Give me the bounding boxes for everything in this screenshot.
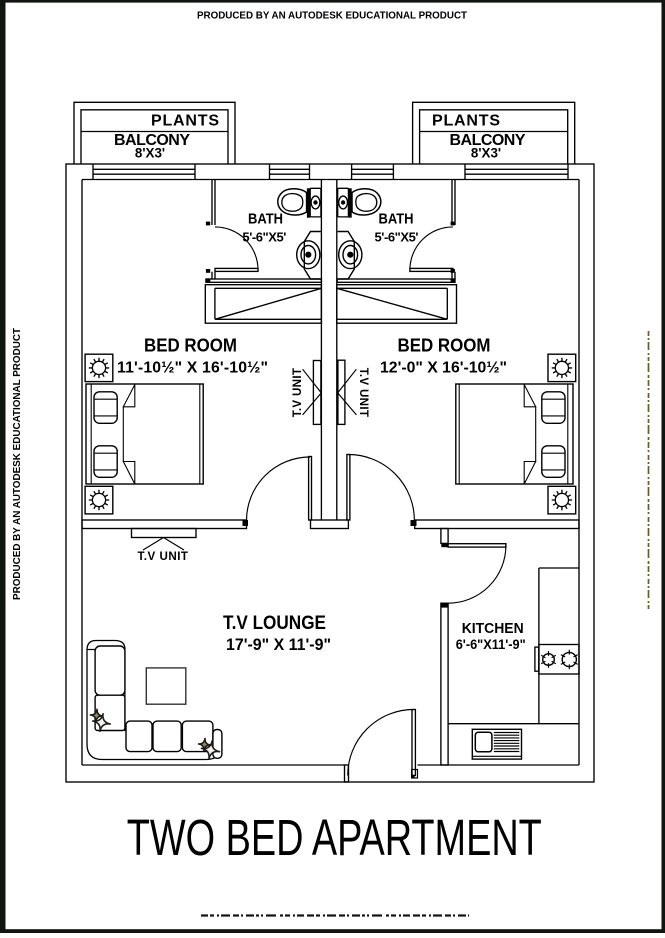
svg-text:BED ROOM: BED ROOM (144, 335, 237, 356)
svg-text:8'X3': 8'X3' (471, 146, 501, 161)
svg-text:PLANTS: PLANTS (432, 113, 500, 130)
svg-text:8'X3': 8'X3' (135, 146, 165, 161)
svg-text:KITCHEN: KITCHEN (462, 620, 524, 637)
svg-text:PLANTS: PLANTS (151, 113, 219, 130)
svg-text:5'-6"X5': 5'-6"X5' (375, 230, 419, 245)
svg-text:PRODUCED BY AN AUTODESK EDUCAT: PRODUCED BY AN AUTODESK EDUCATIONAL PROD… (12, 327, 23, 600)
svg-text:BATH: BATH (248, 212, 283, 228)
svg-text:11'-10½" X 16'-10½": 11'-10½" X 16'-10½" (117, 359, 268, 376)
svg-text:6'-6"X11'-9": 6'-6"X11'-9" (456, 636, 526, 652)
svg-text:17'-9" X 11'-9": 17'-9" X 11'-9" (226, 635, 331, 654)
svg-text:5'-6"X5': 5'-6"X5' (242, 230, 286, 245)
svg-text:TWO BED APARTMENT: TWO BED APARTMENT (127, 809, 542, 866)
svg-text:BED ROOM: BED ROOM (398, 335, 491, 356)
svg-text:T.V UNIT: T.V UNIT (357, 368, 370, 417)
svg-text:12'-0" X 16'-10½": 12'-0" X 16'-10½" (380, 359, 507, 376)
svg-text:PRODUCED BY AN AUTODESK EDUCAT: PRODUCED BY AN AUTODESK EDUCATIONAL PROD… (197, 10, 468, 21)
svg-text:T.V UNIT: T.V UNIT (137, 550, 188, 563)
svg-text:T.V LOUNGE: T.V LOUNGE (223, 613, 326, 634)
svg-text:T.V UNIT: T.V UNIT (291, 368, 304, 417)
svg-text:BATH: BATH (379, 212, 414, 228)
